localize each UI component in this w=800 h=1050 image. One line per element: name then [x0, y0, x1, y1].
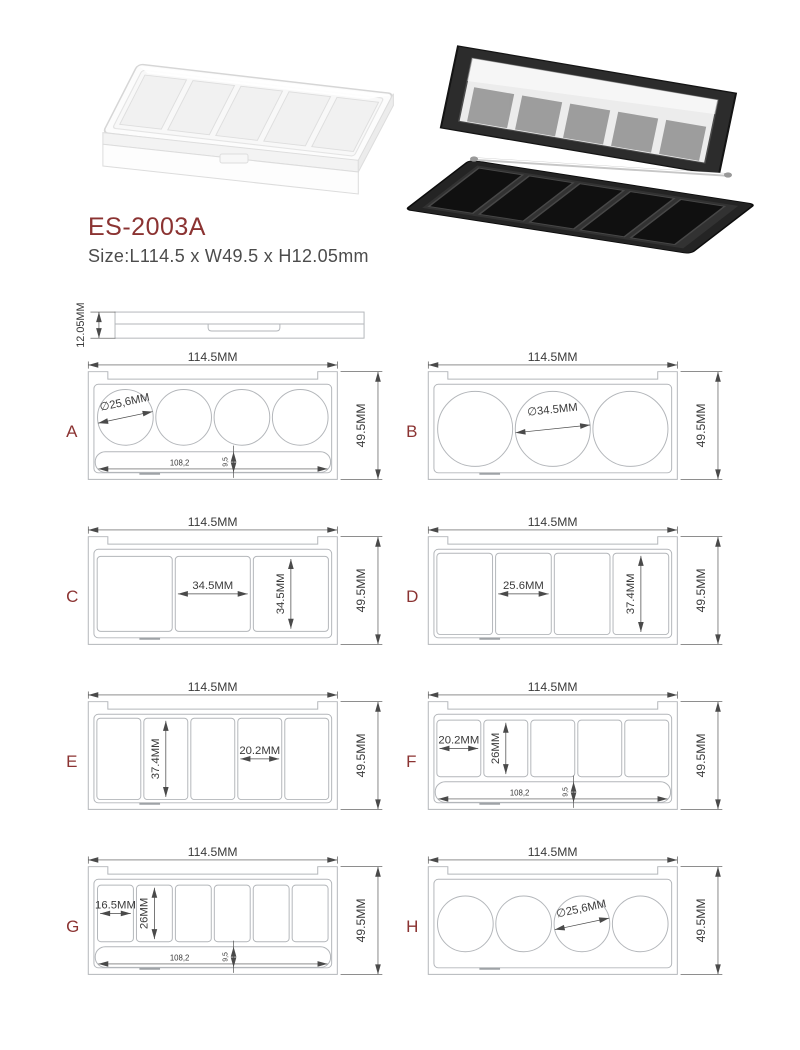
product-model: ES-2003A	[88, 213, 206, 242]
svg-text:20.2MM: 20.2MM	[239, 745, 280, 757]
svg-text:34.5MM: 34.5MM	[275, 573, 287, 614]
drawing-D: 25.6MM37.4MM114.5MM49.5MMD	[400, 516, 739, 660]
drawing-C: 34.5MM34.5MM114.5MM49.5MMC	[60, 516, 399, 660]
side-view-drawing: 12.05MM	[60, 299, 399, 353]
spec-sheet: ES-2003A Size:L114.5 x W49.5 x H12.05mm …	[0, 0, 800, 1050]
svg-text:49.5MM: 49.5MM	[694, 568, 708, 612]
drawing-E: 37.4MM20.2MM114.5MM49.5MME	[60, 681, 399, 825]
clear-palette-latch	[220, 154, 248, 163]
svg-text:114.5MM: 114.5MM	[188, 516, 238, 529]
svg-text:108,2: 108,2	[510, 788, 530, 797]
product-photo-clear-palette	[56, 26, 404, 221]
svg-text:12.05MM: 12.05MM	[75, 302, 87, 347]
product-size: Size:L114.5 x W49.5 x H12.05mm	[88, 246, 369, 267]
svg-text:9,5: 9,5	[222, 952, 229, 962]
svg-text:9,5: 9,5	[222, 457, 229, 467]
svg-text:49.5MM: 49.5MM	[694, 733, 708, 777]
svg-text:9,5: 9,5	[562, 787, 569, 797]
drawing-F: 108,29,520.2MM26MM114.5MM49.5MMF	[400, 681, 739, 825]
drawing-cell-A: 108,29,5∅25,6MM114.5MM49.5MMA	[60, 351, 399, 495]
svg-text:49.5MM: 49.5MM	[354, 733, 368, 777]
svg-text:114.5MM: 114.5MM	[188, 681, 238, 694]
svg-text:49.5MM: 49.5MM	[694, 403, 708, 447]
product-photo-black-palette	[386, 18, 754, 258]
svg-text:20.2MM: 20.2MM	[438, 735, 479, 747]
drawing-cell-D: 25.6MM37.4MM114.5MM49.5MMD	[400, 516, 739, 660]
drawing-letter: B	[406, 422, 417, 441]
svg-text:114.5MM: 114.5MM	[188, 351, 238, 364]
drawing-cell-H: ∅25,6MM114.5MM49.5MMH	[400, 846, 739, 990]
svg-text:26MM: 26MM	[138, 898, 150, 929]
drawing-letter: H	[406, 917, 418, 936]
side-view: 12.05MM	[60, 299, 399, 353]
svg-text:108,2: 108,2	[170, 953, 190, 962]
svg-text:114.5MM: 114.5MM	[528, 351, 578, 364]
drawing-letter: D	[406, 587, 418, 606]
svg-text:37.4MM: 37.4MM	[150, 738, 162, 779]
drawing-cell-C: 34.5MM34.5MM114.5MM49.5MMC	[60, 516, 399, 660]
black-palette-lid	[441, 46, 736, 175]
svg-text:114.5MM: 114.5MM	[528, 681, 578, 694]
drawing-letter: E	[66, 752, 77, 771]
svg-text:114.5MM: 114.5MM	[528, 846, 578, 859]
svg-text:114.5MM: 114.5MM	[188, 846, 238, 859]
svg-text:49.5MM: 49.5MM	[354, 568, 368, 612]
svg-text:37.4MM: 37.4MM	[625, 573, 637, 614]
drawing-G: 108,29,516.5MM26MM114.5MM49.5MMG	[60, 846, 399, 990]
svg-text:108,2: 108,2	[170, 458, 190, 467]
drawing-H: ∅25,6MM114.5MM49.5MMH	[400, 846, 739, 990]
svg-text:16.5MM: 16.5MM	[95, 900, 136, 912]
svg-text:34.5MM: 34.5MM	[192, 580, 233, 592]
drawing-letter: A	[66, 422, 78, 441]
drawing-cell-B: ∅34.5MM114.5MM49.5MMB	[400, 351, 739, 495]
drawing-letter: F	[406, 752, 416, 771]
drawing-cell-E: 37.4MM20.2MM114.5MM49.5MME	[60, 681, 399, 825]
svg-text:25.6MM: 25.6MM	[503, 580, 544, 592]
drawing-A: 108,29,5∅25,6MM114.5MM49.5MMA	[60, 351, 399, 495]
svg-text:49.5MM: 49.5MM	[354, 898, 368, 942]
drawing-B: ∅34.5MM114.5MM49.5MMB	[400, 351, 739, 495]
svg-text:49.5MM: 49.5MM	[354, 403, 368, 447]
drawing-cell-G: 108,29,516.5MM26MM114.5MM49.5MMG	[60, 846, 399, 990]
svg-text:49.5MM: 49.5MM	[694, 898, 708, 942]
svg-text:26MM: 26MM	[490, 733, 502, 764]
drawing-letter: G	[66, 917, 79, 936]
svg-text:114.5MM: 114.5MM	[528, 516, 578, 529]
drawing-letter: C	[66, 587, 78, 606]
drawing-cell-F: 108,29,520.2MM26MM114.5MM49.5MMF	[400, 681, 739, 825]
